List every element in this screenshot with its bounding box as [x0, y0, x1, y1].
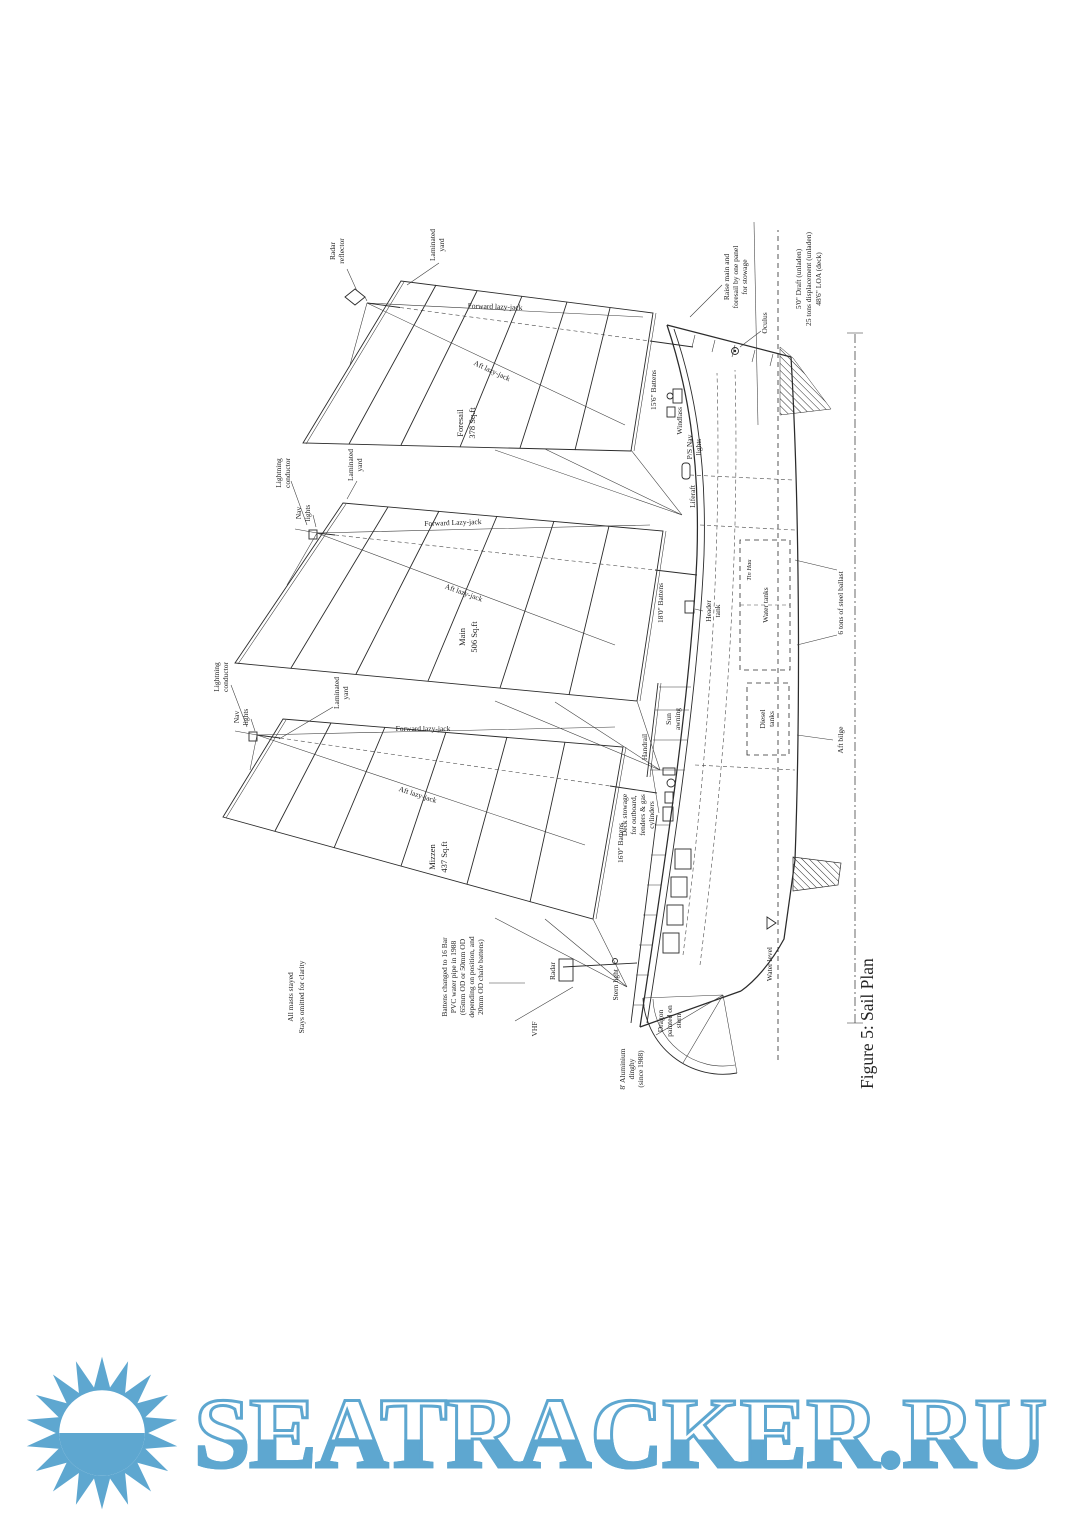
- svg-text:lights: lights: [694, 439, 703, 456]
- foresail-battens-label: 15'6" Battens: [649, 370, 658, 410]
- svg-text:tank: tank: [713, 604, 722, 617]
- svg-text:PVC water pipe in 1988: PVC water pipe in 1988: [449, 941, 458, 1014]
- svg-text:20mm OD chafe battens): 20mm OD chafe battens): [476, 939, 485, 1015]
- main-battens-label: 18'0" Battens: [656, 583, 665, 623]
- sun-awning-label: Sun: [664, 713, 673, 725]
- fore-fwd-lj-label: Forward lazy-jack: [468, 301, 523, 312]
- mizzen-yard-label: Laminated: [332, 677, 341, 709]
- radar-box: [559, 959, 573, 981]
- svg-text:Stays omitted for clarity: Stays omitted for clarity: [297, 960, 306, 1033]
- mizzen-mast: [235, 731, 657, 793]
- radar-reflector-shape: [345, 289, 365, 305]
- mizzen-lazyjacks: [257, 727, 615, 845]
- header-tank-shape: [685, 601, 694, 613]
- masts: [235, 289, 697, 793]
- scanned-book-page: Lightning conductor Nav lights Laminated…: [0, 0, 1080, 1528]
- ballast-label: 6 tons of steel ballast: [836, 570, 845, 634]
- liferaft-label: Liferaft: [688, 484, 697, 508]
- ps-navlights-label: P/S Nav: [685, 434, 694, 459]
- main-aft-lj-label: Aft lazy-jack: [444, 582, 484, 604]
- windlass-shape: [667, 389, 682, 403]
- svg-text:yard: yard: [355, 458, 364, 472]
- svg-text:painted on: painted on: [665, 1005, 674, 1037]
- loa-leader: [754, 222, 758, 425]
- foresail: [303, 281, 682, 515]
- main-yard-label: Laminated: [346, 449, 355, 481]
- cabin-windows: [663, 849, 691, 953]
- svg-text:fenders & gas: fenders & gas: [638, 794, 647, 836]
- radar-reflector-label: Radar: [328, 242, 337, 260]
- liferaft-canister: [682, 463, 690, 479]
- rudder: [793, 857, 841, 891]
- main-lightning-label: Lightning: [274, 458, 283, 488]
- main-lazyjacks: [317, 525, 650, 645]
- seatracker-watermark: SEATRACKER.RU: [18, 1352, 1062, 1514]
- foresail-sheets: [495, 449, 682, 515]
- svg-text:foresail by one panel: foresail by one panel: [731, 246, 740, 309]
- foresail-name: Foresail: [455, 409, 465, 437]
- main-navlights-label: Nav: [294, 507, 303, 520]
- dinghy-label: 8' Aluminium: [618, 1048, 627, 1089]
- mizzen-battens: [275, 723, 565, 902]
- svg-text:48'6" LOA (deck): 48'6" LOA (deck): [814, 252, 823, 306]
- svg-text:depending on position, and: depending on position, and: [467, 936, 476, 1017]
- svg-text:awning: awning: [673, 708, 682, 730]
- deck-stowage-items: [663, 768, 675, 821]
- main-fwd-lj-label: Forward Lazy-jack: [424, 517, 482, 528]
- aft-bilge-label: Aft bilge: [836, 726, 845, 754]
- svg-text:for outboard,: for outboard,: [629, 795, 638, 834]
- hull: [640, 222, 863, 1060]
- svg-text:yard: yard: [341, 686, 350, 700]
- deck-stowage-label: Deck stowage: [620, 793, 629, 836]
- svg-text:stern: stern: [674, 1013, 683, 1028]
- mizzen-name: Mizzen: [427, 844, 437, 870]
- svg-text:for stowage: for stowage: [740, 259, 749, 295]
- stays-note: All masts stayed: [286, 972, 295, 1022]
- bow-forefoot-section: [780, 347, 831, 415]
- header-tank-label: Header: [704, 600, 713, 622]
- fore-yard-label: Laminated: [428, 229, 437, 261]
- svg-text:conductor: conductor: [221, 662, 230, 692]
- dimensions-note: 5'0" Draft (unladen): [794, 248, 803, 309]
- svg-text:dinghy: dinghy: [627, 1058, 636, 1079]
- bow-nav-light: [667, 407, 675, 417]
- svg-text:conductor: conductor: [283, 458, 292, 488]
- dinghy-fan: [643, 995, 737, 1074]
- raise-note: Raise main and: [722, 254, 731, 300]
- dragon-label: Dragon: [656, 1010, 665, 1033]
- radar-label: Radar: [548, 962, 557, 980]
- svg-text:lights: lights: [303, 505, 312, 522]
- sail-plan-drawing: Lightning conductor Nav lights Laminated…: [195, 195, 880, 1115]
- svg-text:25 tons displacement (unladen): 25 tons displacement (unladen): [804, 232, 813, 326]
- main-sail: [235, 503, 666, 770]
- water-level-label: Water level: [765, 947, 774, 981]
- figure-caption: Figure 5: Sail Plan: [857, 958, 877, 1089]
- svg-text:378 Sq.ft: 378 Sq.ft: [467, 407, 477, 439]
- vhf-label: VHF: [530, 1021, 539, 1036]
- vhf-antenna: [515, 987, 573, 1021]
- main-sheets: [495, 701, 660, 770]
- main-name: Main: [457, 627, 467, 646]
- svg-text:reflector: reflector: [337, 238, 346, 264]
- mizzen-sheets: [495, 918, 627, 987]
- oculus-eye: [732, 348, 739, 355]
- seatracker-logo-text: SEATRACKER.RU: [194, 1353, 1046, 1513]
- svg-text:lights: lights: [241, 709, 250, 726]
- diesel-tanks-label: Diesel: [758, 709, 767, 728]
- battens-note: Battens changed to 16 Bar: [440, 937, 449, 1017]
- bow-planking: [692, 335, 773, 366]
- mizzen-navlights-label: Nav: [232, 711, 241, 724]
- mizzen-aft-lj-label: Aft lazy-jack: [398, 784, 438, 805]
- handrail-label: Handrail: [640, 734, 649, 760]
- sun-icon: [18, 1349, 186, 1517]
- boat-name: Tin Hau: [746, 559, 753, 581]
- svg-text:437 Sq.ft: 437 Sq.ft: [439, 841, 449, 873]
- foremast: [345, 289, 693, 347]
- svg-text:cylinders: cylinders: [647, 801, 656, 829]
- labels: Lightning conductor Nav lights Laminated…: [212, 229, 877, 1090]
- svg-text:yard: yard: [437, 238, 446, 252]
- sail-plan-figure: Lightning conductor Nav lights Laminated…: [195, 195, 880, 1115]
- oculus-label: Oculus: [760, 312, 769, 333]
- waterline-marker: [767, 917, 776, 929]
- mizzen-fwd-lj-label: Forward lazy-jack: [396, 724, 451, 733]
- mizzen-lightning-label: Lightning: [212, 662, 221, 692]
- leader-lines: [231, 263, 837, 983]
- windlass-label: Windlass: [675, 407, 684, 435]
- svg-text:(since 1988): (since 1988): [636, 1050, 645, 1088]
- stern-light-label: Stern light: [611, 968, 620, 1000]
- main-mast: [295, 529, 697, 575]
- svg-text:506 Sq.ft: 506 Sq.ft: [469, 621, 479, 653]
- mizzen-sail: [223, 719, 627, 987]
- svg-text:tanks: tanks: [767, 711, 776, 727]
- water-tanks-label: Water tanks: [761, 587, 770, 623]
- svg-text:(65mm OD or 50mm OD: (65mm OD or 50mm OD: [458, 938, 467, 1015]
